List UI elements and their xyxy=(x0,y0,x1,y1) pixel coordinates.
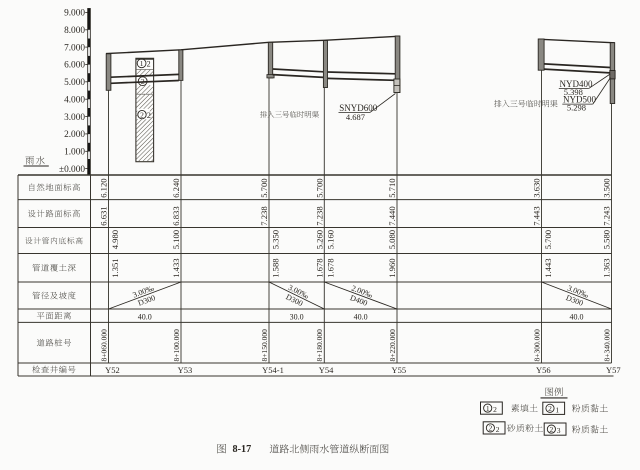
svg-text:5.160: 5.160 xyxy=(326,230,336,249)
svg-text:8+180.000: 8+180.000 xyxy=(315,329,324,362)
svg-text:Y53: Y53 xyxy=(178,365,193,375)
svg-text:1.960: 1.960 xyxy=(387,258,397,277)
svg-text:2: 2 xyxy=(140,110,144,119)
svg-text:5.100: 5.100 xyxy=(171,230,181,249)
svg-text:2: 2 xyxy=(141,77,145,86)
svg-text:3.500: 3.500 xyxy=(602,178,612,197)
svg-text:1.588: 1.588 xyxy=(270,258,280,277)
svg-text:7.440: 7.440 xyxy=(387,206,397,225)
svg-text:6.120: 6.120 xyxy=(99,178,109,197)
svg-text:6.833: 6.833 xyxy=(171,206,181,225)
svg-text:1.000: 1.000 xyxy=(64,148,85,158)
svg-text:4.687: 4.687 xyxy=(346,112,365,122)
svg-text:6.240: 6.240 xyxy=(171,178,181,197)
svg-text:8+220.000: 8+220.000 xyxy=(388,329,397,362)
svg-text:Y56: Y56 xyxy=(536,365,551,375)
svg-text:7.238: 7.238 xyxy=(259,206,269,225)
svg-text:2: 2 xyxy=(489,424,493,433)
svg-text:1: 1 xyxy=(486,404,490,413)
svg-text:1.678: 1.678 xyxy=(315,258,325,277)
svg-text:3: 3 xyxy=(557,426,561,435)
svg-text:8-17: 8-17 xyxy=(233,444,252,455)
svg-text:2: 2 xyxy=(548,404,552,413)
svg-text:5.260: 5.260 xyxy=(315,230,325,249)
svg-text:1.351: 1.351 xyxy=(110,258,120,277)
svg-text:8.000: 8.000 xyxy=(64,26,85,36)
svg-text:7.000: 7.000 xyxy=(64,43,85,53)
svg-text:1.363: 1.363 xyxy=(602,258,612,277)
svg-text:5.700: 5.700 xyxy=(543,230,553,249)
svg-text:40.0: 40.0 xyxy=(354,313,368,322)
svg-text:40.0: 40.0 xyxy=(570,313,584,322)
svg-text:2: 2 xyxy=(550,425,554,434)
svg-text:5.298: 5.298 xyxy=(567,103,586,113)
svg-text:8+060.000: 8+060.000 xyxy=(99,329,108,362)
svg-text:Y54-1: Y54-1 xyxy=(262,365,284,375)
svg-text:5.080: 5.080 xyxy=(387,230,397,249)
svg-text:6.000: 6.000 xyxy=(64,61,85,71)
svg-text:3.000: 3.000 xyxy=(64,113,85,123)
svg-text:8+100.000: 8+100.000 xyxy=(172,329,181,362)
svg-text:8+340.000: 8+340.000 xyxy=(602,329,611,362)
svg-text:1: 1 xyxy=(140,59,144,68)
svg-text:8+150.000: 8+150.000 xyxy=(260,329,269,362)
svg-text:5.700: 5.700 xyxy=(315,178,325,197)
svg-text:3.630: 3.630 xyxy=(532,178,542,197)
svg-text:5.710: 5.710 xyxy=(387,178,397,197)
svg-text:2.000: 2.000 xyxy=(64,130,85,140)
svg-text:5.350: 5.350 xyxy=(270,230,280,249)
svg-text:Y57: Y57 xyxy=(606,365,621,375)
svg-text:7.238: 7.238 xyxy=(315,206,325,225)
svg-text:4.000: 4.000 xyxy=(64,95,85,105)
svg-text:5.000: 5.000 xyxy=(64,78,85,88)
svg-text:8+300.000: 8+300.000 xyxy=(532,329,541,362)
svg-text:7.243: 7.243 xyxy=(602,206,612,225)
svg-text:9.000: 9.000 xyxy=(64,9,85,19)
svg-text:5.700: 5.700 xyxy=(259,178,269,197)
svg-text:1.433: 1.433 xyxy=(171,258,181,277)
svg-text:1.443: 1.443 xyxy=(543,258,553,277)
svg-text:2: 2 xyxy=(493,405,497,414)
svg-text:1: 1 xyxy=(555,405,559,414)
svg-text:30.0: 30.0 xyxy=(290,313,304,322)
svg-text:4.980: 4.980 xyxy=(110,230,120,249)
svg-text:7.443: 7.443 xyxy=(532,206,542,225)
svg-text:Y55: Y55 xyxy=(391,365,406,375)
svg-text:±0.000: ±0.000 xyxy=(59,165,85,175)
svg-text:5.580: 5.580 xyxy=(602,230,612,249)
svg-text:2: 2 xyxy=(147,111,151,120)
svg-text:Y52: Y52 xyxy=(105,365,120,375)
svg-text:6.631: 6.631 xyxy=(99,206,109,225)
svg-text:Y54: Y54 xyxy=(319,365,334,375)
svg-text:2: 2 xyxy=(496,425,500,434)
svg-text:40.0: 40.0 xyxy=(138,313,152,322)
svg-text:2: 2 xyxy=(147,60,151,69)
svg-text:1.678: 1.678 xyxy=(326,258,336,277)
